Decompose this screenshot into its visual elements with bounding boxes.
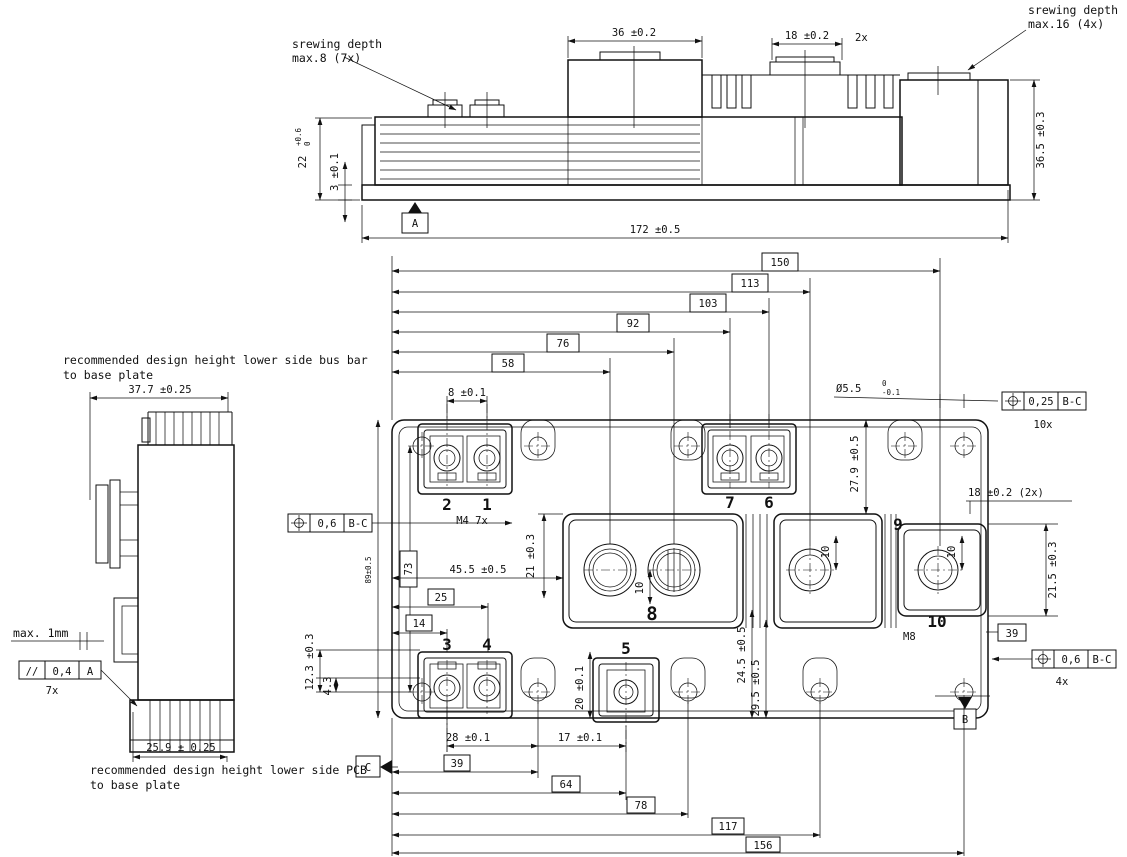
side-elevation-view: 36 ±0.2 18 ±0.2 2x srewing depth max.8 (…: [292, 3, 1118, 243]
dim-36: 36 ±0.2: [612, 27, 656, 39]
terminal-1-label: 1: [482, 495, 492, 514]
dim-18-qty: 2x: [855, 32, 868, 44]
terminal-5-label: 5: [621, 639, 631, 658]
dim-3: 3 ±0.1: [329, 153, 341, 191]
fcf-left-datums: B-C: [349, 518, 368, 530]
dim-172: 172 ±0.5: [630, 224, 681, 236]
dim-4-3: 4.3: [322, 677, 334, 696]
fcf-parallel-value: 0,4: [53, 666, 72, 678]
dim-18: 18 ±0.2: [785, 30, 829, 42]
fcf-holes-value: 0,25: [1028, 396, 1053, 408]
plan-view: 2 1 M4 7x 8 ±0.1 7 6 8: [288, 253, 1116, 856]
boxed-dim-64: 64: [560, 779, 573, 791]
datum-a: A: [402, 202, 428, 233]
dim-45-5: 45.5 ±0.5: [450, 564, 507, 576]
boxed-dim-39: 39: [451, 758, 464, 770]
datum-b: B: [935, 696, 990, 729]
dim-36-5: 36.5 ±0.3: [1035, 112, 1047, 169]
dim-hole-dia-tol-up: 0: [882, 379, 887, 388]
svg-text:0: 0: [303, 141, 312, 146]
boxed-dim-117: 117: [719, 821, 738, 833]
boxed-dim-92: 92: [627, 318, 640, 330]
note-busbar-line2: to base plate: [63, 368, 153, 382]
power-terminal-9: [774, 514, 882, 628]
dim-8: 8 ±0.1: [448, 387, 486, 399]
note-screw-depth-small-line1: srewing depth: [292, 37, 382, 51]
boxed-dim-150: 150: [771, 257, 790, 269]
fcf-holes-qty: 10x: [1034, 419, 1053, 431]
note-busbar-line1: recommended design height lower side bus…: [63, 353, 368, 367]
terminal-4-label: 4: [482, 635, 492, 654]
fcf-position-m8: 0,6 B-C: [992, 650, 1116, 668]
boxed-dim-156: 156: [754, 840, 773, 852]
svg-text:+0.6: +0.6: [294, 127, 303, 146]
note-pcb-line1: recommended design height lower side PCB: [90, 763, 367, 777]
datum-b-label: B: [962, 714, 968, 726]
terminal-10-label: 10: [927, 612, 946, 631]
dim-28: 28 ±0.1: [446, 732, 490, 744]
dim-10-terminal10: 10: [946, 546, 958, 559]
fcf-parallel-datum: A: [87, 666, 94, 678]
end-view: recommended design height lower side bus…: [11, 353, 368, 792]
dim-29-5: 29.5 ±0.5: [750, 660, 762, 717]
terminal-8-label: 8: [646, 603, 657, 625]
fin-lines: [380, 117, 803, 185]
terminal-block-7-6: [702, 414, 796, 494]
dim-21: 21 ±0.3: [525, 534, 537, 578]
dim-21-5: 21.5 ±0.3: [1047, 542, 1059, 599]
terminal-6-label: 6: [764, 493, 774, 512]
m4-thread-label: M4 7x: [456, 515, 488, 527]
end-view-profile: [96, 412, 234, 752]
boxed-dim-113: 113: [741, 278, 760, 290]
chain-extension-lines-bottom: [392, 702, 964, 856]
fcf-left-value: 0,6: [318, 518, 337, 530]
fcf-position-holes: 0,25 B-C: [1002, 392, 1086, 410]
note-screw-depth-large-line1: srewing depth: [1028, 3, 1118, 17]
power-terminal-10: [898, 524, 986, 616]
boxed-dim-103: 103: [699, 298, 718, 310]
boxed-dim-73: 73: [403, 563, 415, 576]
dim-89: 89±0.5: [364, 556, 373, 583]
dim-22: 22 +0.6 0: [294, 127, 312, 168]
boxed-dim-76: 76: [557, 338, 570, 350]
dim-37-7: 37.7 ±0.25: [128, 384, 191, 396]
note-screw-depth-large-line2: max.16 (4x): [1028, 17, 1104, 31]
dim-18-2x: 18 ±0.2 (2x): [968, 487, 1044, 499]
power-module-drawing: 36 ±0.2 18 ±0.2 2x srewing depth max.8 (…: [0, 0, 1127, 857]
boxed-dim-58: 58: [502, 358, 515, 370]
terminal-2-label: 2: [442, 495, 452, 514]
dim-hole-dia-tol-dn: -0.1: [882, 388, 900, 397]
dim-25-9: 25.9 ± 0.25: [146, 742, 216, 754]
boxed-dim-39-right: 39: [1006, 628, 1019, 640]
screw-bosses: [428, 92, 504, 128]
dim-27-9: 27.9 ±0.5: [849, 436, 861, 493]
dim-10-terminal9: 10: [820, 546, 832, 559]
dim-17: 17 ±0.1: [558, 732, 602, 744]
parallelism-icon: //: [26, 666, 39, 678]
fcf-right-value: 0,6: [1062, 654, 1081, 666]
dim-20: 20 ±0.1: [574, 666, 586, 710]
terminal-block-2-1: [418, 404, 512, 494]
datum-a-label: A: [412, 218, 419, 230]
note-pcb-line2: to base plate: [90, 778, 180, 792]
svg-text:22: 22: [297, 156, 309, 169]
drawing-sheet: 36 ±0.2 18 ±0.2 2x srewing depth max.8 (…: [0, 0, 1127, 857]
fcf-holes-datums: B-C: [1063, 396, 1082, 408]
fcf-parallel-qty: 7x: [46, 685, 59, 697]
boxed-dim-78: 78: [635, 800, 648, 812]
dim-24-5: 24.5 ±0.5: [736, 627, 748, 684]
rib-lines-left: [746, 514, 767, 628]
mounting-tabs: [521, 420, 922, 698]
fcf-parallelism: // 0,4 A: [19, 661, 137, 706]
dim-max-gap: max. 1mm: [13, 626, 68, 640]
fcf-right-datums: B-C: [1093, 654, 1112, 666]
dim-12-3: 12.3 ±0.3: [304, 634, 316, 691]
dim-hole-dia: Ø5.5: [836, 383, 861, 395]
dim-10-terminal8: 10: [634, 582, 646, 595]
m8-thread-label: M8: [903, 631, 916, 643]
note-screw-depth-small-line2: max.8 (7x): [292, 51, 361, 65]
boxed-dim-25: 25: [435, 592, 448, 604]
boxed-dim-14: 14: [413, 618, 426, 630]
fcf-right-qty: 4x: [1056, 676, 1069, 688]
terminal-7-label: 7: [725, 493, 735, 512]
